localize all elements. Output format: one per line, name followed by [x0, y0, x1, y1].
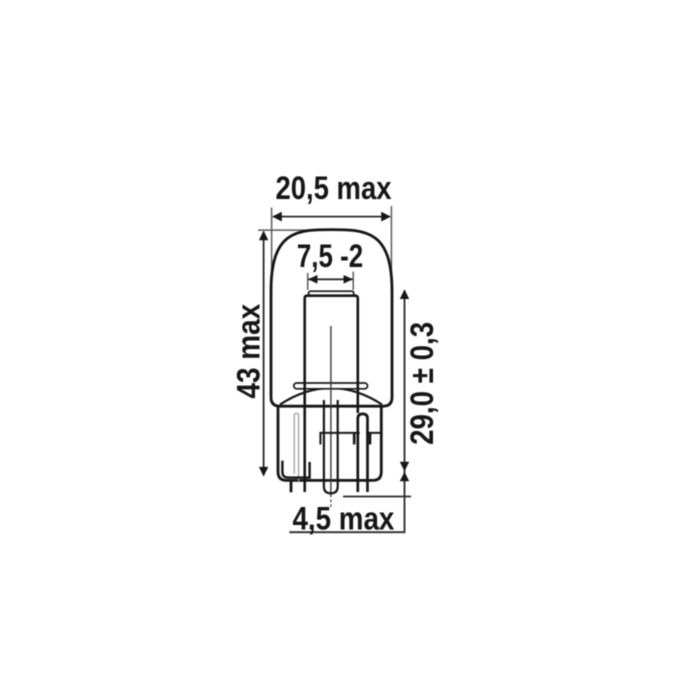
svg-text:4,5 max: 4,5 max [293, 500, 395, 536]
svg-text:7,5 -2: 7,5 -2 [297, 238, 363, 274]
svg-text:20,5 max: 20,5 max [276, 170, 392, 206]
svg-text:29,0 ± 0,3: 29,0 ± 0,3 [404, 322, 440, 445]
svg-text:43 max: 43 max [230, 304, 266, 399]
